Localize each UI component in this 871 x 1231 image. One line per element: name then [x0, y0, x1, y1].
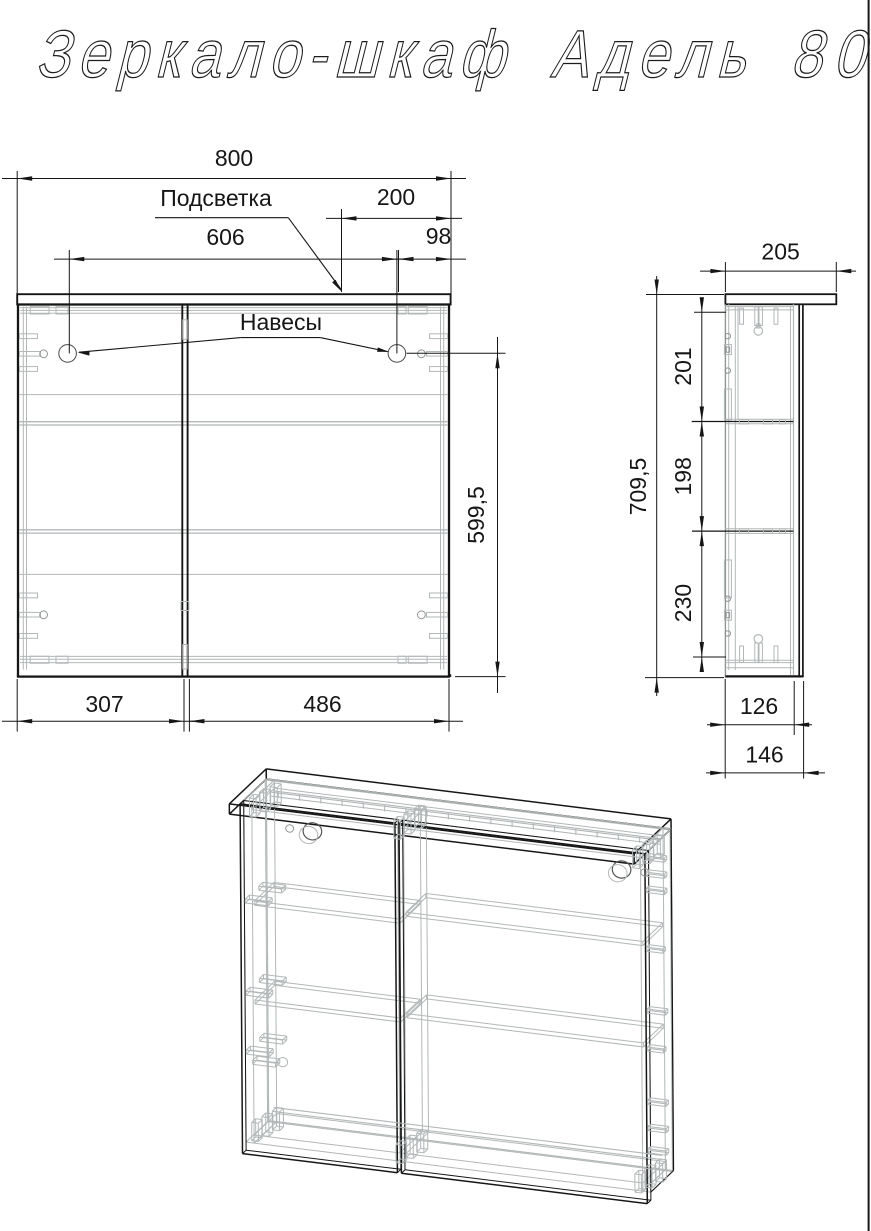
svg-text:98: 98: [426, 223, 452, 249]
svg-text:Подсветка: Подсветка: [160, 185, 272, 211]
svg-text:307: 307: [85, 691, 123, 717]
svg-text:Навесы: Навесы: [240, 309, 322, 335]
svg-text:230: 230: [670, 584, 696, 622]
svg-text:486: 486: [303, 691, 341, 717]
svg-text:200: 200: [377, 184, 415, 210]
svg-text:198: 198: [670, 457, 696, 495]
svg-text:205: 205: [761, 239, 799, 265]
svg-text:146: 146: [745, 742, 783, 768]
svg-text:599,5: 599,5: [463, 486, 489, 544]
svg-text:606: 606: [206, 224, 244, 250]
svg-text:709,5: 709,5: [625, 458, 651, 516]
svg-text:800: 800: [215, 145, 253, 171]
svg-text:126: 126: [740, 693, 778, 719]
svg-text:Адель: Адель: [546, 17, 759, 91]
svg-text:201: 201: [670, 347, 696, 385]
